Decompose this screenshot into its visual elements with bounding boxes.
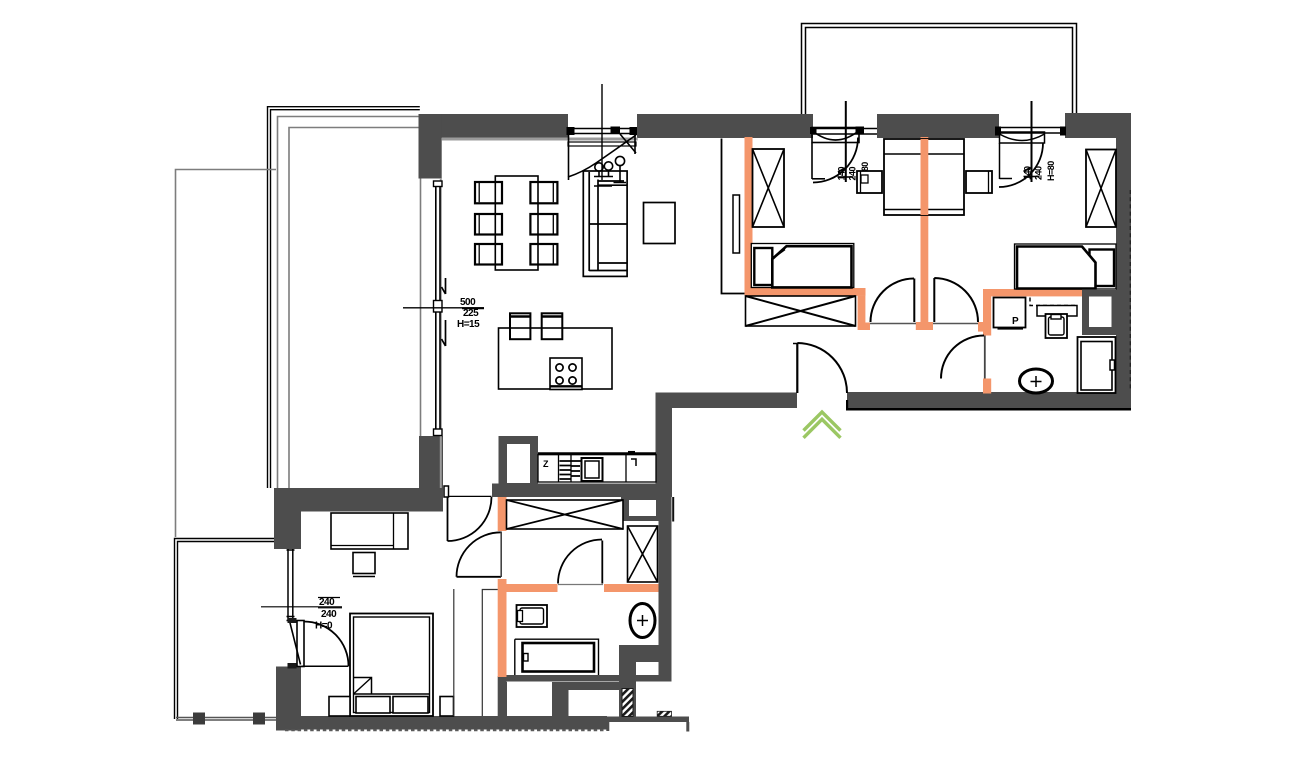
svg-text:225: 225 bbox=[463, 308, 479, 319]
svg-text:240: 240 bbox=[321, 609, 337, 620]
svg-text:240: 240 bbox=[319, 597, 335, 608]
svg-text:Z: Z bbox=[543, 459, 549, 469]
svg-text:240: 240 bbox=[1034, 166, 1044, 180]
svg-text:240: 240 bbox=[848, 166, 858, 180]
svg-text:H=15: H=15 bbox=[457, 319, 480, 330]
svg-text:140: 140 bbox=[1023, 166, 1033, 180]
svg-text:140: 140 bbox=[837, 166, 847, 180]
svg-text:H=0: H=0 bbox=[315, 621, 333, 632]
svg-text:P: P bbox=[1012, 316, 1019, 327]
svg-text:500: 500 bbox=[460, 297, 476, 308]
svg-text:H=80: H=80 bbox=[1046, 161, 1056, 181]
